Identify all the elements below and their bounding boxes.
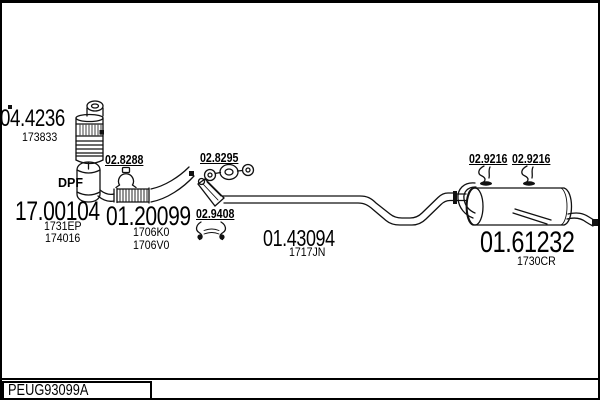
part-ref-label: 174016 [45, 232, 80, 244]
cone-coupler-drawing [198, 179, 224, 207]
part-ref-label: 1706K0 [133, 226, 169, 238]
catalog-ref: PEUG93099A [8, 382, 88, 400]
catalog-ref-box: PEUG93099A [2, 381, 152, 400]
accessory-code-gasket[interactable]: 02.8295 [200, 152, 238, 165]
accessory-code-double-hanger[interactable]: 02.9408 [196, 208, 234, 221]
dpf-label: DPF [58, 177, 83, 190]
catalytic-converter-drawing [76, 101, 104, 164]
footer-divider [2, 378, 598, 380]
rubber-hanger-icon [479, 166, 492, 186]
gasket-icon [205, 165, 254, 181]
part-code-catalytic-converter[interactable]: 04.4236 [0, 107, 65, 131]
rubber-hanger-icon [522, 166, 535, 186]
part-ref-label: 1730CR [517, 255, 556, 267]
part-ref-label: 1717JN [289, 246, 325, 258]
accessory-code-clamp[interactable]: 02.8288 [105, 154, 143, 167]
accessory-code-hanger-1[interactable]: 02.9216 [469, 153, 507, 166]
part-ref-label: 1706V0 [133, 239, 169, 251]
clamp-icon [116, 168, 136, 188]
exhaust-parts-diagram-page: 04.4236 173833 17.00104 1731EP 174016 01… [0, 0, 600, 400]
tailpipe-drawing [567, 213, 599, 226]
part-ref-label: 173833 [22, 131, 57, 143]
double-hanger-icon [197, 222, 226, 240]
accessory-code-hanger-2[interactable]: 02.9216 [512, 153, 550, 166]
front-pipe-drawing [151, 167, 194, 202]
rear-muffler-drawing [458, 183, 572, 225]
middle-pipe-drawing [222, 191, 466, 225]
